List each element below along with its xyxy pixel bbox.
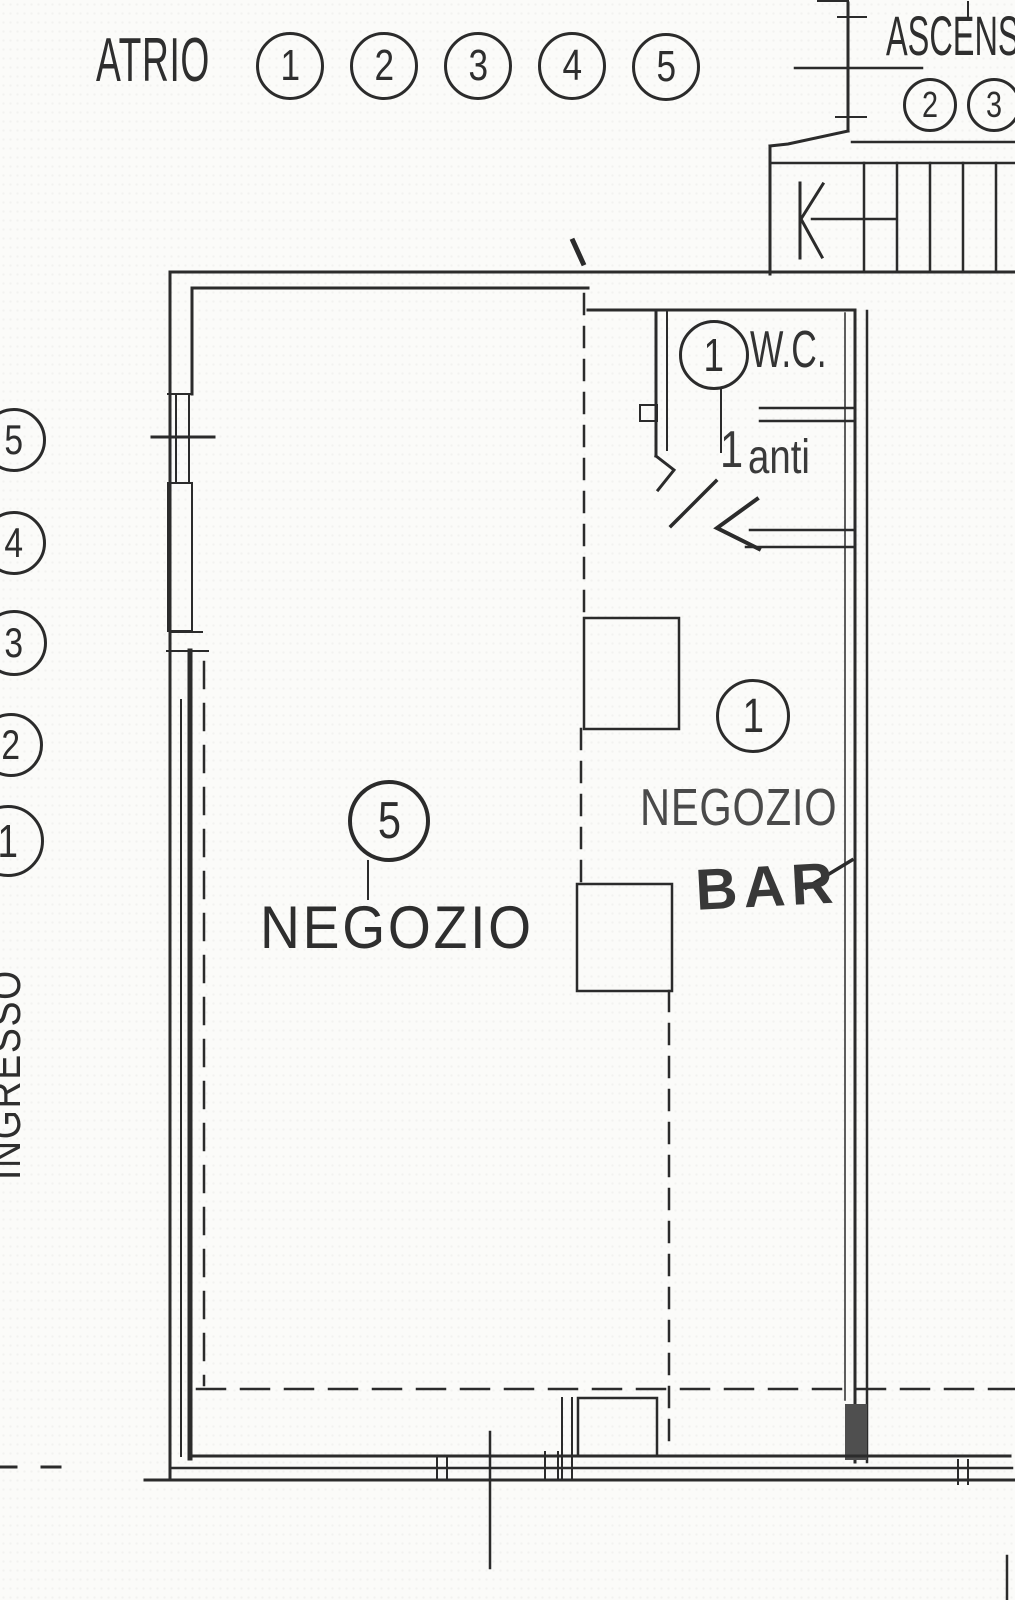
unit-number: 2 [2,721,21,769]
unit-number: 1 [704,328,724,382]
bar-handwritten-label: BAR [694,854,841,919]
floorplan-drawing [0,0,1015,1600]
elevator-label: ASCENS [886,8,1015,64]
anti-room-number: 1 [720,424,743,476]
unit-number: 3 [5,619,24,667]
shop5-unit-circle: 5 [348,780,430,862]
staircase [770,146,1015,274]
north-tick [573,241,583,263]
unit-number: 5 [5,416,24,464]
anti-room-label: anti [748,434,810,482]
unit-number: 3 [986,84,1002,126]
window-frame [168,483,192,631]
unit-number: 3 [468,41,488,91]
unit-number: 1 [0,814,18,868]
unit-number: 4 [562,41,582,91]
floorplan-page: ATRIO 1 2 3 4 5 ASCENS 2 3 1 W.C. 1 anti… [0,0,1015,1600]
unit-number: 5 [377,791,400,851]
wc-label: W.C. [750,324,827,376]
door-swing [671,481,716,526]
wall-pier [845,1404,867,1460]
unit-number: 2 [922,84,938,126]
right-wall [845,311,867,1462]
atrio-label: ATRIO [96,30,210,92]
entrance-arrow [717,499,854,549]
counter-block [577,884,672,991]
counter-block [584,618,679,729]
atrio-unit-circle: 2 [350,32,418,100]
atrio-unit-circle: 4 [538,32,606,100]
unit-number: 1 [280,41,300,91]
stair-direction-arrow [800,183,895,258]
unit-number: 5 [656,42,676,92]
wc-unit-circle: 1 [679,320,749,390]
threshold-box [578,1398,657,1456]
shop1-label: NEGOZIO [640,782,837,834]
atrio-unit-circle: 3 [444,32,512,100]
shop-divider [368,294,679,1452]
elevator-unit-circle: 3 [967,78,1015,132]
atrio-unit-circle: 5 [632,33,700,101]
elevator-unit-circle: 2 [903,78,957,132]
shop1-unit-circle: 1 [716,679,790,753]
ingresso-label: INGRESSO [0,1000,28,1180]
wall-notch [640,405,657,421]
unit-number: 1 [742,689,763,744]
door-jamb [656,456,674,490]
outer-walls [152,272,1015,1480]
unit-number: 4 [5,519,24,567]
top-corridor-wall [573,241,855,310]
unit-number: 2 [374,41,394,91]
atrio-unit-circle: 1 [256,32,324,100]
shop5-label: NEGOZIO [260,898,534,958]
